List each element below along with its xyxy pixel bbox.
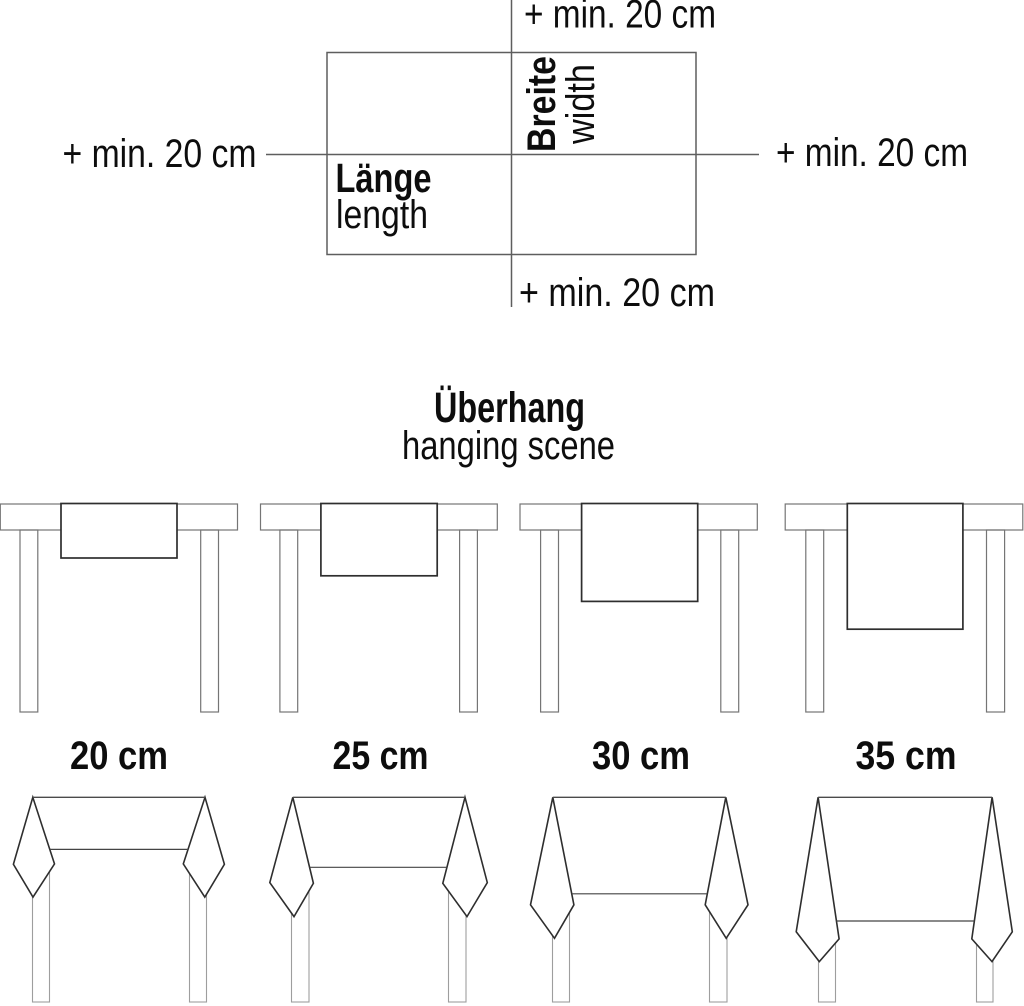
svg-text:+ min. 20 cm: + min. 20 cm <box>524 0 716 37</box>
svg-text:+ min. 20 cm: + min. 20 cm <box>519 271 715 315</box>
svg-text:length: length <box>336 193 428 237</box>
svg-text:width: width <box>559 64 603 145</box>
svg-text:+ min. 20 cm: + min. 20 cm <box>776 131 968 175</box>
svg-text:20 cm: 20 cm <box>70 734 168 778</box>
svg-text:hanging scene: hanging scene <box>402 424 615 468</box>
svg-text:+ min. 20 cm: + min. 20 cm <box>63 132 257 176</box>
svg-text:35 cm: 35 cm <box>856 734 957 778</box>
svg-text:25 cm: 25 cm <box>333 734 429 778</box>
svg-text:30 cm: 30 cm <box>592 734 690 778</box>
svg-text:Breite: Breite <box>520 56 564 152</box>
